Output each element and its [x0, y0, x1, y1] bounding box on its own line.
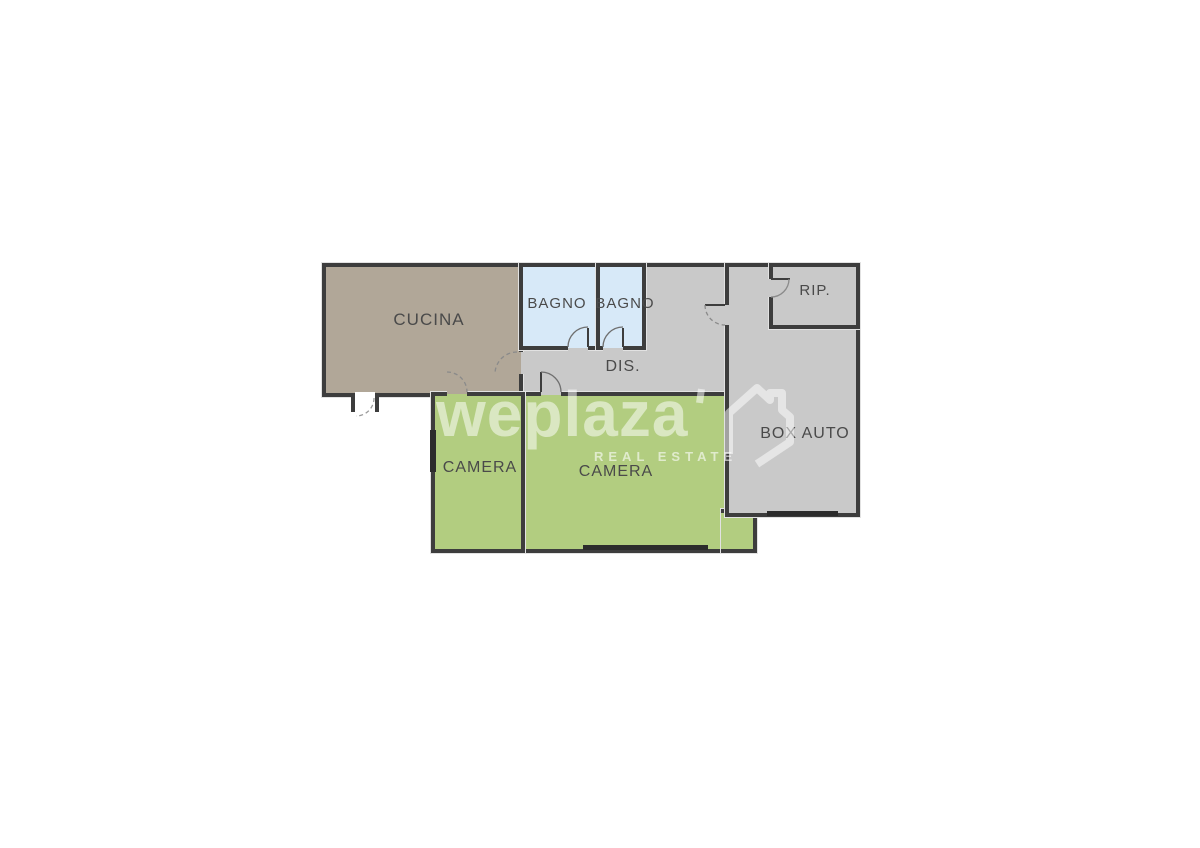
room-label-box-auto: BOX AUTO: [723, 425, 887, 443]
room-label-rip: RIP.: [775, 282, 855, 299]
room-label-dis: DIS.: [583, 358, 663, 376]
room-label-bagno-2: BAGNO: [585, 295, 665, 312]
entry-stub-wall: [351, 396, 355, 412]
room-label-camera-1: CAMERA: [420, 459, 540, 477]
entry-stub-wall: [375, 396, 379, 412]
room-label-camera-2: CAMERA: [556, 463, 676, 481]
door-arc: [356, 398, 374, 416]
room-label-cucina: CUCINA: [354, 310, 504, 330]
room-cucina: [322, 263, 523, 397]
